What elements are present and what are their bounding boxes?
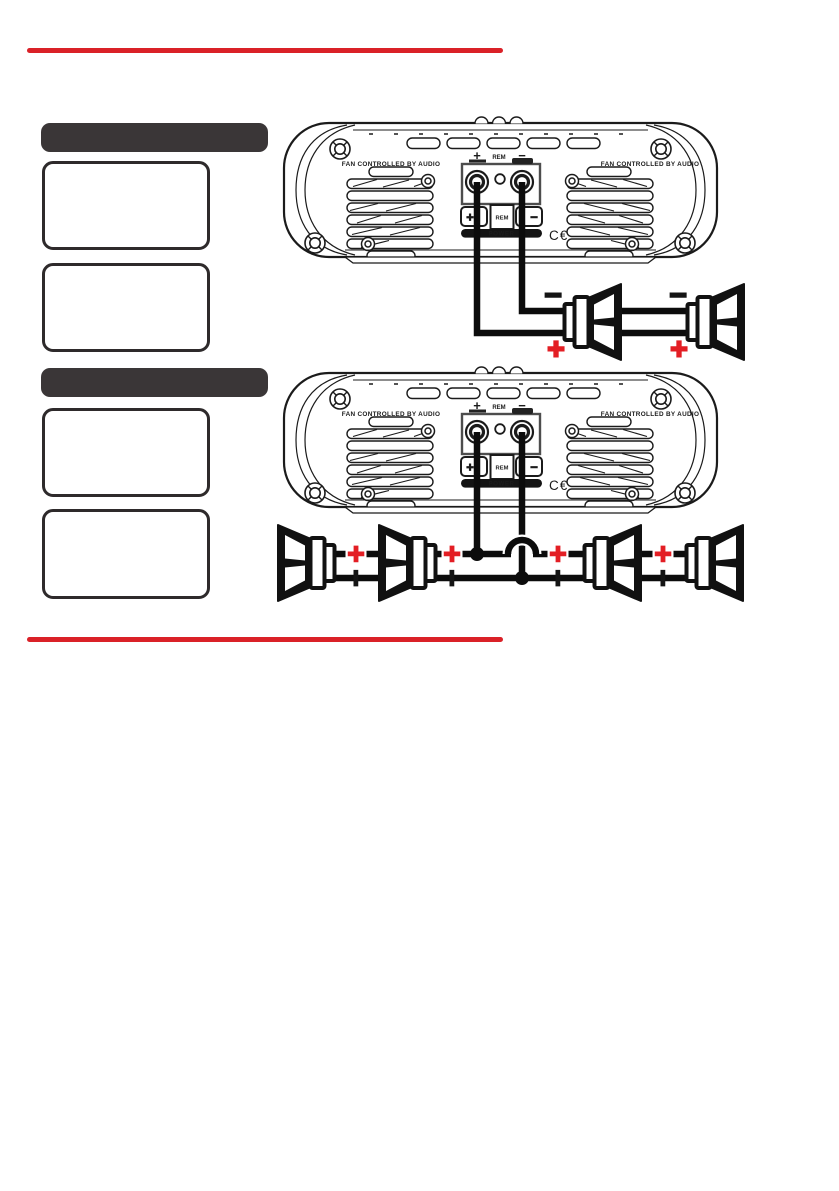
polarity-plus-label: +: [549, 538, 567, 571]
speaker-1: [278, 525, 335, 601]
speaker-4: [687, 525, 744, 601]
speaker-1: [565, 284, 622, 360]
polarity-minus-tick: −: [339, 569, 372, 587]
junction-dot-minus: [515, 571, 529, 585]
polarity-minus-label: −: [669, 279, 687, 312]
polarity-minus-tick: −: [646, 569, 679, 587]
speaker-2: [688, 284, 745, 360]
polarity-minus-label: −: [544, 279, 562, 312]
polarity-plus-label: +: [670, 333, 688, 366]
speaker-2: [379, 525, 436, 601]
amplifier-illustration-top: [284, 117, 717, 263]
amplifier-illustration-bottom: [284, 367, 717, 513]
manual-page: FAN CONTROLLED BY AUDIO FAN CONTROLLED B…: [0, 0, 839, 1191]
polarity-minus-tick: −: [541, 569, 574, 587]
speaker-3: [585, 525, 642, 601]
polarity-plus-label: +: [443, 538, 461, 571]
polarity-plus-label: +: [547, 333, 565, 366]
junction-dot-plus: [470, 547, 484, 561]
polarity-plus-label: +: [654, 538, 672, 571]
polarity-minus-tick: −: [435, 569, 468, 587]
polarity-plus-label: +: [347, 538, 365, 571]
wiring-diagrams: FAN CONTROLLED BY AUDIO FAN CONTROLLED B…: [0, 0, 839, 1191]
